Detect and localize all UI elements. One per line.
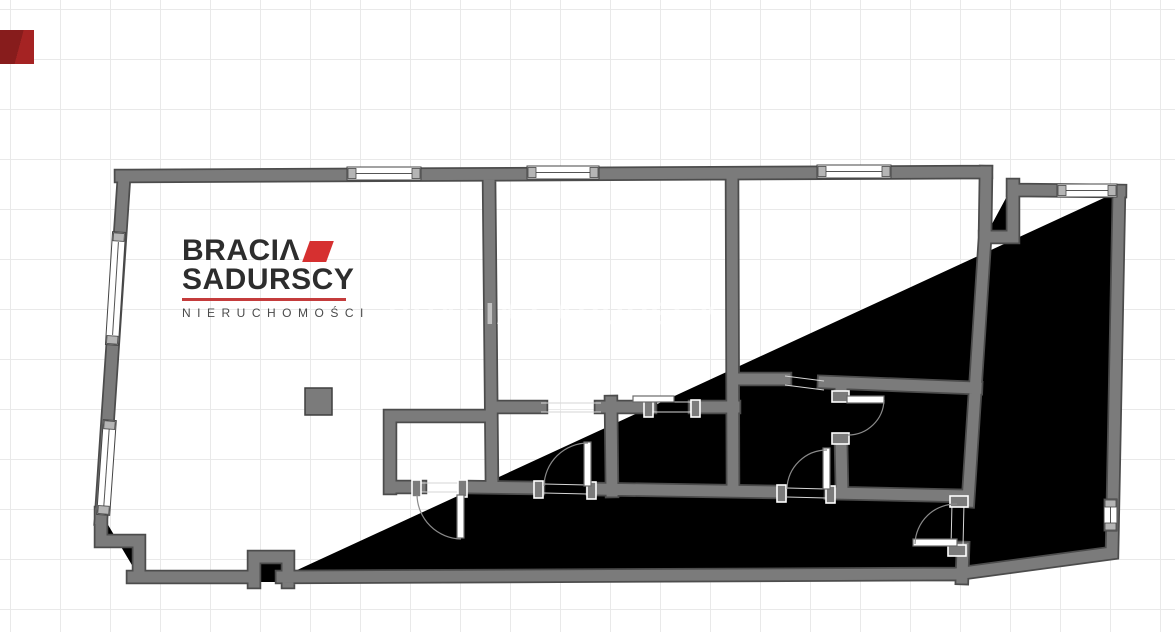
brand-logo: BRACIΛ SADURSCY NIERUCHOMOŚCI <box>182 236 370 320</box>
sliding-door <box>633 396 674 402</box>
logo-lambda-mark: Λ <box>280 236 301 266</box>
window <box>817 165 891 178</box>
window <box>347 167 421 180</box>
floor-plan-page: { "brand": { "line1": "BRACI", "line1_ma… <box>0 0 1175 632</box>
corner-brand-square <box>0 30 34 64</box>
logo-tagline: NIERUCHOMOŚCI <box>182 306 370 320</box>
window <box>1104 499 1117 531</box>
window <box>1057 184 1117 197</box>
column-pillar <box>305 388 332 415</box>
logo-text-sadurscy: SADURSCY <box>182 266 370 294</box>
watermark-text: BRACIA SADURSCY <box>388 296 720 332</box>
logo-text-bracia: BRACI <box>182 236 280 266</box>
logo-line1: BRACIΛ <box>182 236 370 266</box>
window <box>527 166 599 179</box>
logo-red-parallelogram-icon <box>302 241 334 262</box>
logo-red-rule <box>182 298 346 301</box>
